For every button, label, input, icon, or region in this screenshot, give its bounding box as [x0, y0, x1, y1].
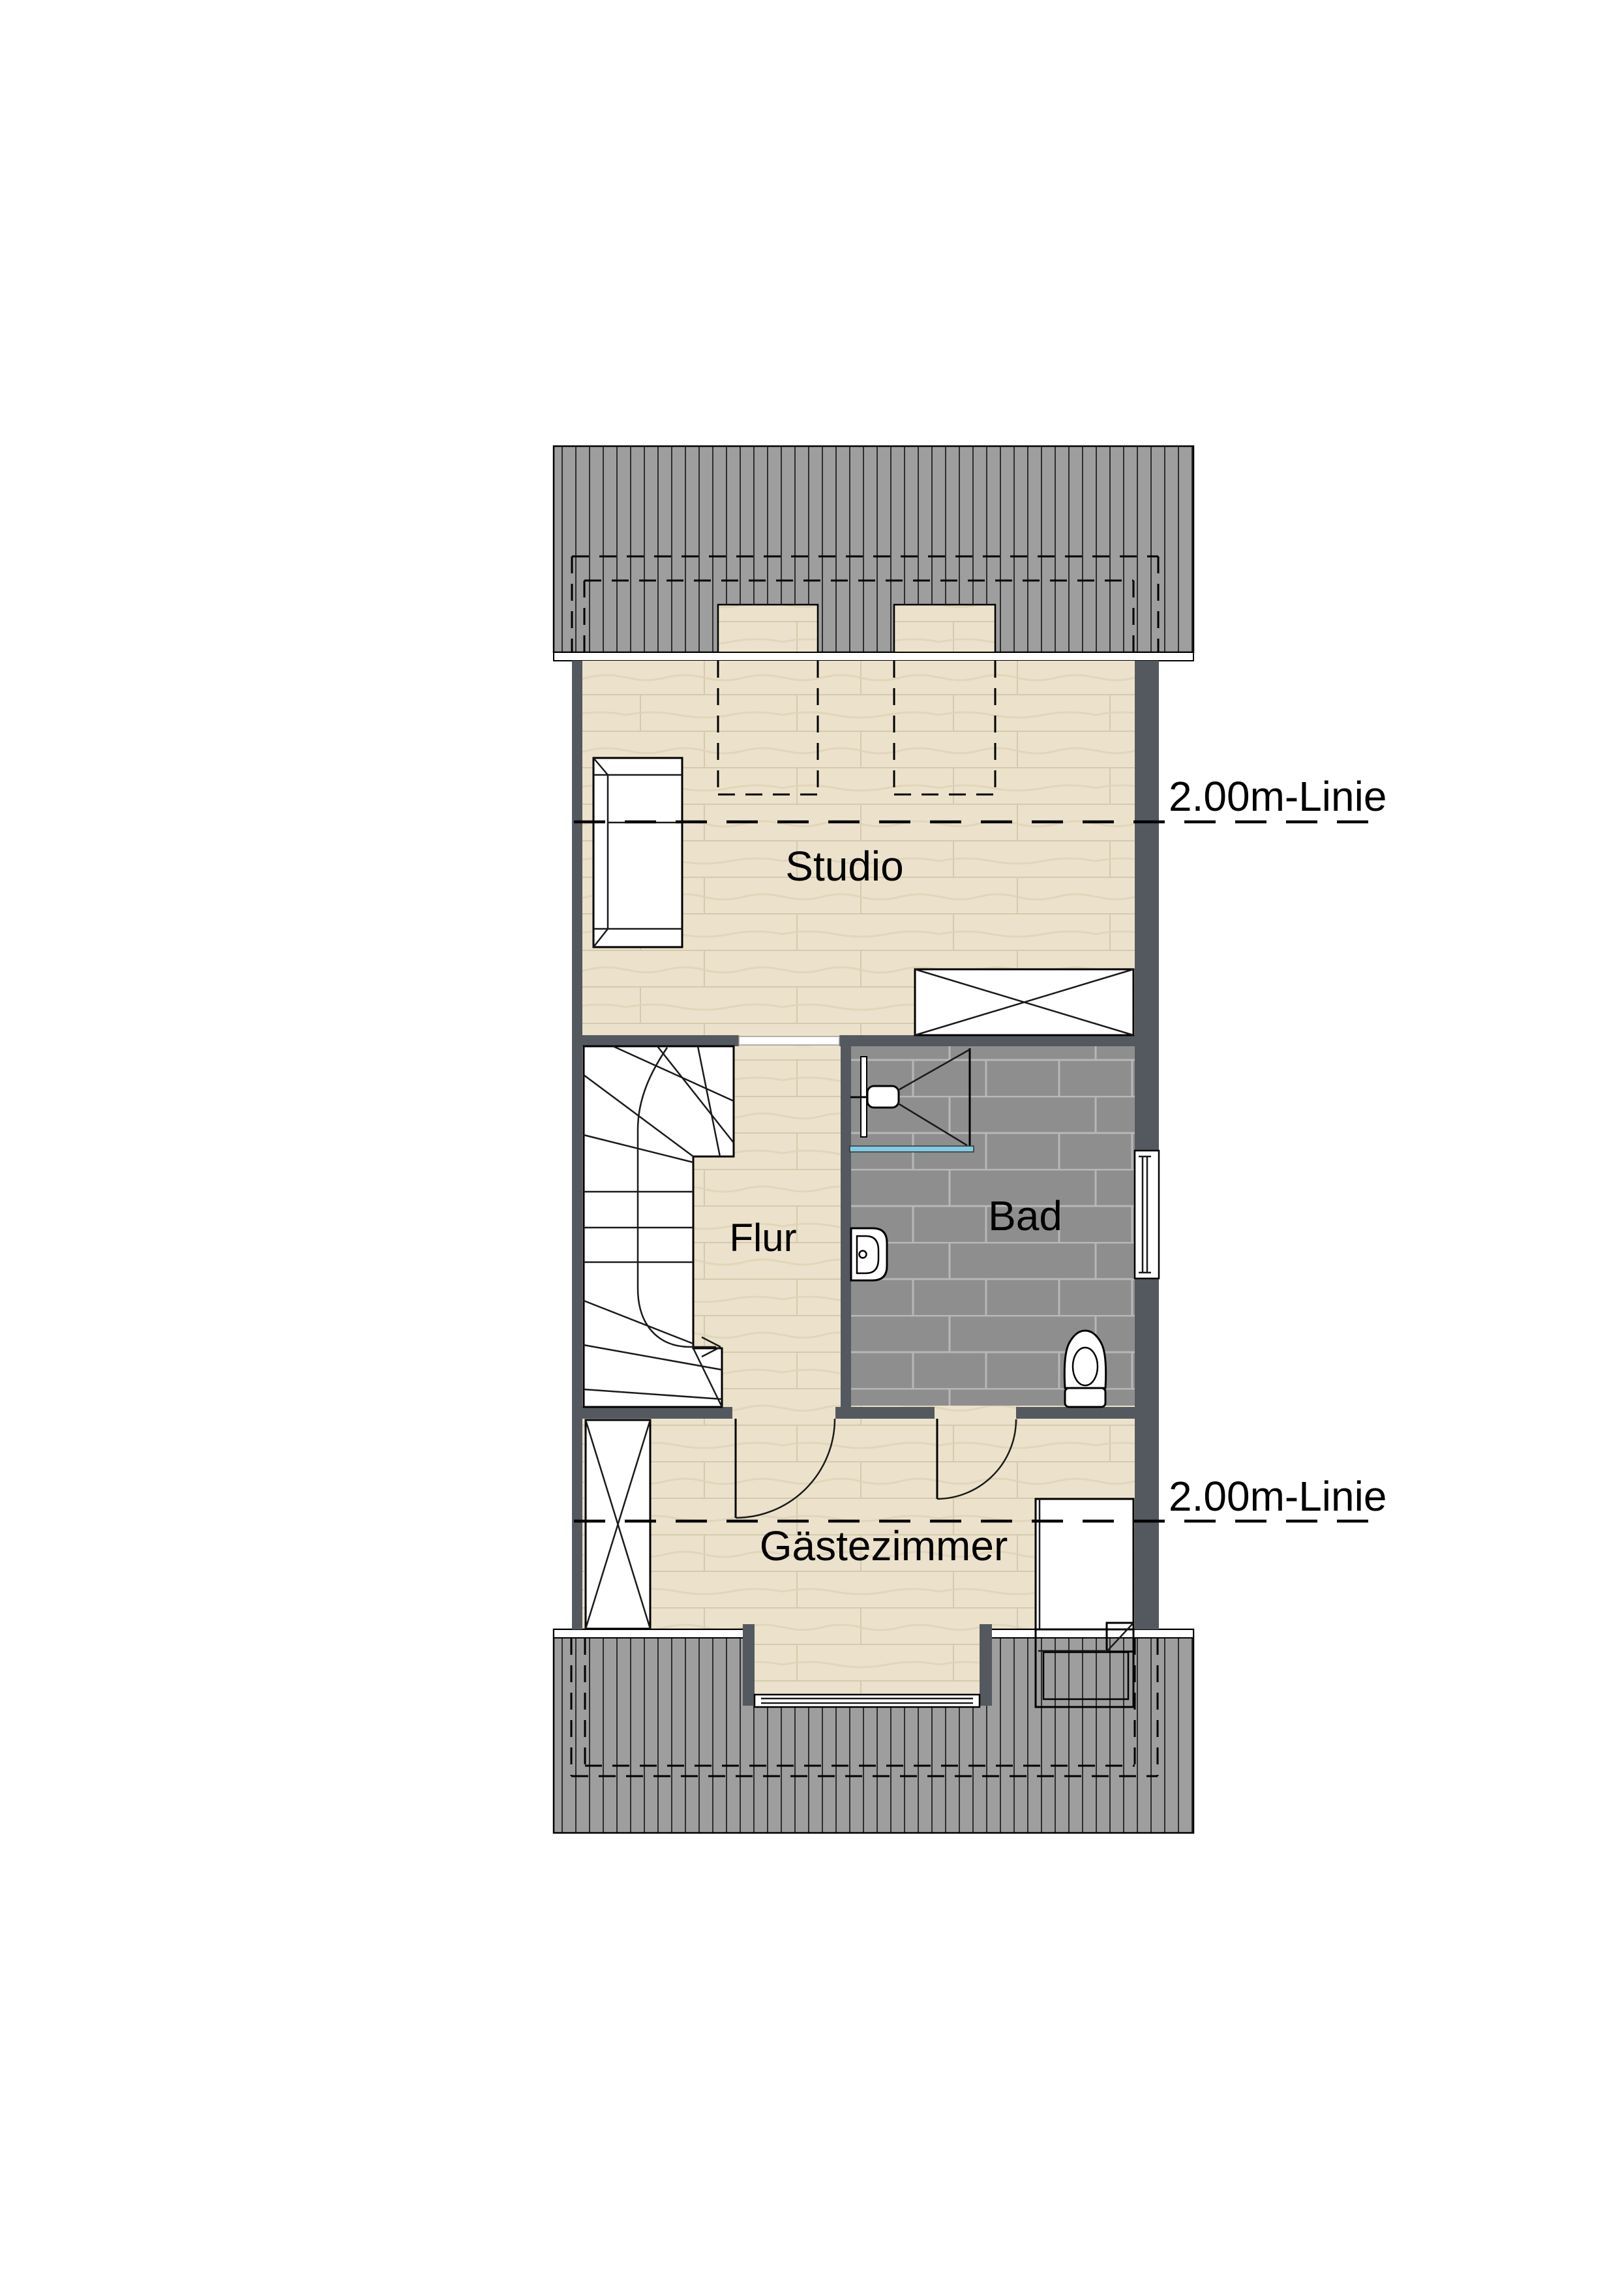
- studio-label: Studio: [785, 843, 903, 890]
- washbasin-tap-icon: [860, 1251, 867, 1258]
- roof-top-fascia: [554, 652, 1193, 661]
- toilet: [1064, 1331, 1105, 1407]
- interior-wall-studio-bad: [839, 1035, 1135, 1046]
- bad-label: Bad: [988, 1192, 1062, 1239]
- interior-wall-studio-flur: [582, 1035, 739, 1046]
- bad-window: [1135, 1151, 1159, 1278]
- interior-wall-flur-gaestezimmer: [582, 1407, 732, 1419]
- floor-plan-drawing: Studio Flur Bad Gästezimmer 2.00m-Linie …: [0, 0, 1618, 2296]
- roof-top-hatch: [554, 446, 1193, 652]
- interior-wall-middle-piece: [835, 1407, 935, 1419]
- dormer-wall-right: [980, 1624, 992, 1706]
- washbasin: [851, 1228, 887, 1280]
- gaestezimmer-crossed-box: [586, 1420, 650, 1629]
- roof-dormer-cutout-right: [894, 605, 995, 654]
- studio-crossed-box: [915, 969, 1133, 1035]
- roof-bottom: [554, 1611, 1193, 1833]
- roof-top: [554, 446, 1193, 661]
- exterior-wall-right-upper: [1135, 661, 1159, 1152]
- height-line-bottom-label: 2.00m-Linie: [1169, 1473, 1386, 1520]
- exterior-wall-left: [572, 661, 582, 1629]
- interior-wall-bad-gaestezimmer: [1016, 1407, 1135, 1419]
- studio-flur-threshold: [739, 1036, 839, 1045]
- gaestezimmer-label: Gästezimmer: [760, 1522, 1008, 1569]
- dormer-wall-left: [743, 1624, 755, 1706]
- shower-drain-channel: [850, 1146, 974, 1152]
- dormer-window: [755, 1695, 980, 1707]
- exterior-wall-right-lower: [1135, 1277, 1159, 1629]
- floor-plan-page: Studio Flur Bad Gästezimmer 2.00m-Linie …: [0, 0, 1618, 2296]
- sofa: [593, 758, 682, 947]
- roof-dormer-cutout-left: [718, 605, 818, 654]
- height-line-top-label: 2.00m-Linie: [1169, 773, 1386, 820]
- flur-label: Flur: [729, 1216, 796, 1260]
- interior-wall-flur-bad: [841, 1046, 851, 1407]
- gaestezimmer-dormer-floor: [755, 1611, 980, 1696]
- shower-head-icon: [867, 1086, 899, 1108]
